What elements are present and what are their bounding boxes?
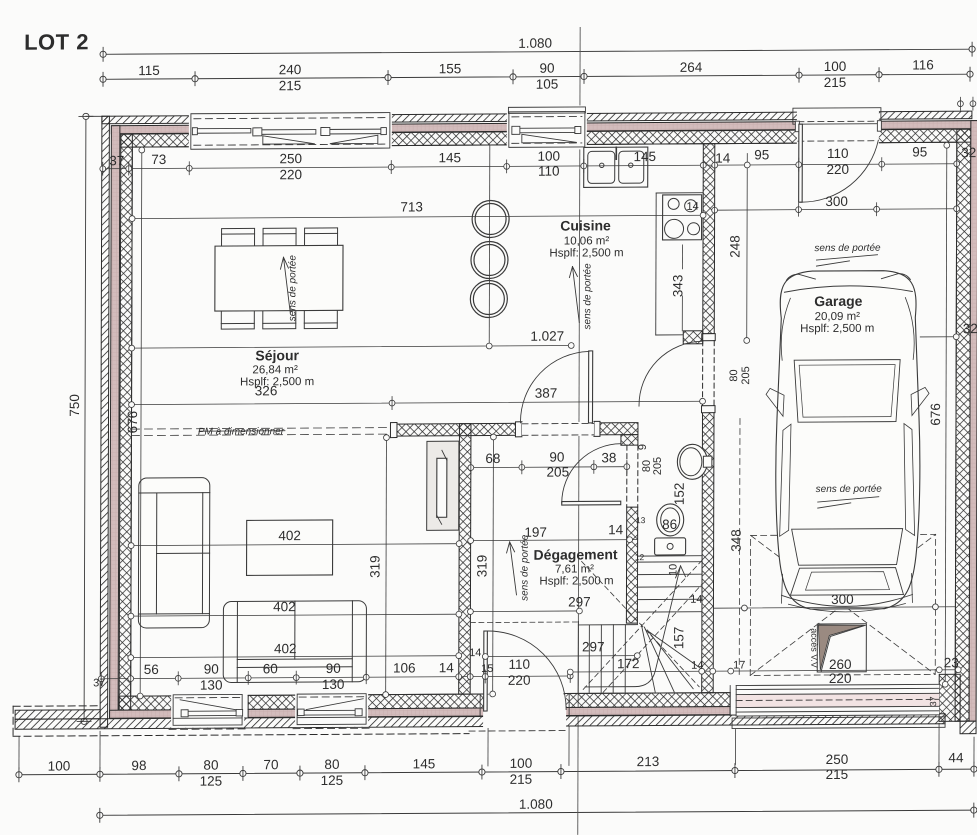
svg-text:70: 70 bbox=[263, 757, 278, 772]
svg-text:110: 110 bbox=[827, 146, 849, 161]
svg-text:402: 402 bbox=[274, 641, 297, 656]
svg-text:sens de portée: sens de portée bbox=[287, 255, 298, 322]
svg-text:73: 73 bbox=[151, 152, 166, 167]
svg-text:13: 13 bbox=[636, 515, 646, 525]
svg-text:205: 205 bbox=[740, 366, 752, 384]
svg-text:676: 676 bbox=[928, 403, 943, 426]
svg-text:80: 80 bbox=[728, 369, 740, 381]
svg-text:14: 14 bbox=[690, 594, 702, 606]
svg-text:56: 56 bbox=[144, 662, 159, 677]
svg-text:220: 220 bbox=[829, 671, 852, 686]
svg-text:100: 100 bbox=[824, 59, 847, 74]
svg-text:37: 37 bbox=[928, 696, 938, 706]
svg-text:213: 213 bbox=[637, 754, 660, 769]
svg-text:348: 348 bbox=[729, 529, 744, 552]
svg-text:23: 23 bbox=[944, 655, 959, 670]
svg-text:157: 157 bbox=[671, 627, 686, 650]
svg-text:297: 297 bbox=[568, 594, 591, 609]
svg-text:sens de portée: sens de portée bbox=[582, 263, 593, 330]
svg-text:145: 145 bbox=[633, 149, 656, 164]
svg-text:95: 95 bbox=[912, 144, 927, 159]
svg-text:713: 713 bbox=[400, 199, 423, 214]
svg-text:220: 220 bbox=[508, 673, 531, 688]
svg-text:215: 215 bbox=[279, 78, 302, 93]
svg-text:125: 125 bbox=[321, 773, 344, 788]
svg-text:220: 220 bbox=[826, 162, 849, 177]
svg-text:44: 44 bbox=[948, 750, 964, 765]
svg-text:Dégagement: Dégagement bbox=[534, 546, 618, 562]
svg-text:12: 12 bbox=[635, 552, 645, 562]
svg-text:9: 9 bbox=[637, 444, 649, 450]
svg-text:80: 80 bbox=[324, 757, 339, 772]
svg-text:90: 90 bbox=[204, 662, 219, 677]
svg-text:387: 387 bbox=[535, 386, 558, 401]
svg-text:110: 110 bbox=[538, 164, 560, 179]
svg-text:105: 105 bbox=[536, 77, 559, 92]
svg-text:750: 750 bbox=[67, 394, 82, 417]
svg-text:130: 130 bbox=[200, 678, 223, 693]
svg-text:sens de portée: sens de portée bbox=[519, 534, 530, 601]
svg-text:326: 326 bbox=[255, 383, 278, 398]
svg-text:sens de portée: sens de portée bbox=[816, 484, 883, 495]
svg-text:Garage: Garage bbox=[814, 293, 863, 309]
svg-text:250: 250 bbox=[279, 151, 302, 166]
svg-text:215: 215 bbox=[824, 75, 847, 90]
svg-text:402: 402 bbox=[278, 528, 301, 543]
svg-text:68: 68 bbox=[485, 451, 500, 466]
svg-text:215: 215 bbox=[826, 767, 849, 782]
svg-text:26,84 m²: 26,84 m² bbox=[252, 364, 298, 376]
svg-text:106: 106 bbox=[393, 660, 416, 675]
svg-text:14: 14 bbox=[469, 647, 481, 659]
svg-text:100: 100 bbox=[48, 758, 71, 773]
svg-text:86: 86 bbox=[662, 517, 677, 532]
svg-text:32: 32 bbox=[963, 321, 977, 336]
svg-text:319: 319 bbox=[368, 555, 383, 578]
svg-text:Hsplf: 2,500 m: Hsplf: 2,500 m bbox=[549, 247, 623, 259]
svg-text:319: 319 bbox=[475, 555, 490, 578]
svg-text:14: 14 bbox=[715, 151, 731, 166]
svg-text:90: 90 bbox=[540, 61, 555, 76]
svg-text:100: 100 bbox=[537, 149, 560, 164]
svg-text:676: 676 bbox=[125, 411, 140, 434]
svg-text:260: 260 bbox=[829, 657, 852, 672]
svg-text:264: 264 bbox=[680, 60, 703, 75]
svg-text:37: 37 bbox=[109, 153, 124, 168]
svg-text:205: 205 bbox=[547, 465, 570, 480]
svg-text:155: 155 bbox=[439, 61, 462, 76]
svg-text:145: 145 bbox=[413, 756, 436, 771]
svg-text:300: 300 bbox=[831, 592, 854, 607]
svg-text:15: 15 bbox=[481, 663, 493, 675]
svg-text:Hsplf: 2,500 m: Hsplf: 2,500 m bbox=[800, 323, 874, 335]
svg-text:Cuisine: Cuisine bbox=[560, 217, 611, 233]
svg-text:220: 220 bbox=[279, 167, 302, 182]
svg-text:LOT 2: LOT 2 bbox=[24, 29, 89, 54]
svg-text:248: 248 bbox=[727, 235, 742, 258]
svg-text:17: 17 bbox=[733, 659, 745, 671]
svg-text:14: 14 bbox=[608, 522, 624, 537]
svg-text:95: 95 bbox=[754, 147, 769, 162]
svg-text:116: 116 bbox=[912, 57, 934, 72]
svg-text:10,06 m²: 10,06 m² bbox=[564, 235, 610, 247]
svg-text:accès V.V: accès V.V bbox=[809, 628, 819, 668]
svg-text:130: 130 bbox=[322, 677, 345, 692]
svg-text:90: 90 bbox=[326, 661, 341, 676]
svg-text:37: 37 bbox=[93, 677, 105, 689]
svg-text:152: 152 bbox=[672, 483, 687, 506]
svg-text:98: 98 bbox=[131, 758, 146, 773]
svg-text:300: 300 bbox=[825, 194, 848, 209]
svg-text:14: 14 bbox=[686, 201, 698, 213]
svg-text:240: 240 bbox=[279, 62, 302, 77]
svg-text:20,09 m²: 20,09 m² bbox=[815, 311, 861, 323]
svg-text:14: 14 bbox=[439, 660, 455, 675]
svg-text:80: 80 bbox=[203, 758, 218, 773]
svg-text:250: 250 bbox=[826, 752, 849, 767]
svg-text:297: 297 bbox=[582, 639, 605, 654]
svg-text:10: 10 bbox=[668, 564, 680, 576]
svg-text:1.080: 1.080 bbox=[518, 36, 552, 51]
svg-text:90: 90 bbox=[549, 450, 564, 465]
svg-text:115: 115 bbox=[138, 63, 160, 78]
svg-text:125: 125 bbox=[200, 774, 223, 789]
svg-text:Hsplf: 2,500 m: Hsplf: 2,500 m bbox=[539, 575, 613, 587]
svg-text:145: 145 bbox=[438, 150, 461, 165]
svg-text:PM à dimensionner: PM à dimensionner bbox=[198, 426, 285, 438]
svg-text:60: 60 bbox=[263, 661, 278, 676]
svg-text:1.027: 1.027 bbox=[530, 329, 564, 344]
svg-text:402: 402 bbox=[273, 599, 296, 614]
svg-text:343: 343 bbox=[670, 275, 685, 298]
svg-text:32: 32 bbox=[961, 145, 976, 160]
svg-text:sens de portée: sens de portée bbox=[814, 243, 881, 254]
svg-text:215: 215 bbox=[510, 772, 533, 787]
svg-text:38: 38 bbox=[601, 450, 616, 465]
svg-text:172: 172 bbox=[617, 656, 640, 671]
svg-text:1.080: 1.080 bbox=[519, 797, 553, 812]
svg-text:Séjour: Séjour bbox=[255, 347, 299, 363]
svg-text:7,61 m²: 7,61 m² bbox=[555, 563, 594, 575]
svg-text:110: 110 bbox=[508, 657, 530, 672]
svg-text:14: 14 bbox=[691, 660, 703, 672]
svg-text:205: 205 bbox=[652, 457, 664, 475]
svg-text:100: 100 bbox=[510, 756, 533, 771]
